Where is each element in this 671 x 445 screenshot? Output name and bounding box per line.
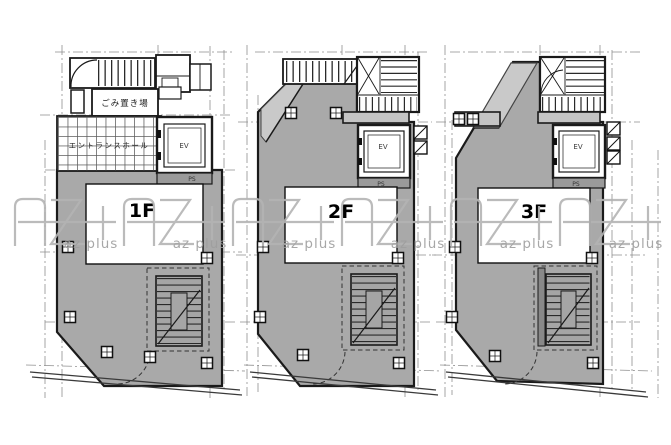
watermark-unit: az plus — [342, 199, 445, 252]
watermark-text: az plus — [282, 236, 337, 252]
watermark-unit: az plus — [560, 199, 663, 252]
watermark-text: az plus — [391, 236, 446, 252]
watermark-unit: az plus — [451, 199, 554, 252]
watermark-unit: az plus — [124, 199, 227, 252]
watermark-layer: az plus az plus az plus az plus az p — [0, 0, 671, 445]
watermark-text: az plus — [609, 236, 664, 252]
floor-plan-sheet: ごみ置き場 エントランスホール EV PS 1F — [0, 0, 671, 445]
watermark-text: az plus — [500, 236, 555, 252]
watermark-text: az plus — [173, 236, 228, 252]
watermark-text: az plus — [64, 236, 119, 252]
watermark-unit: az plus — [15, 199, 118, 252]
watermark-unit: az plus — [233, 199, 336, 252]
